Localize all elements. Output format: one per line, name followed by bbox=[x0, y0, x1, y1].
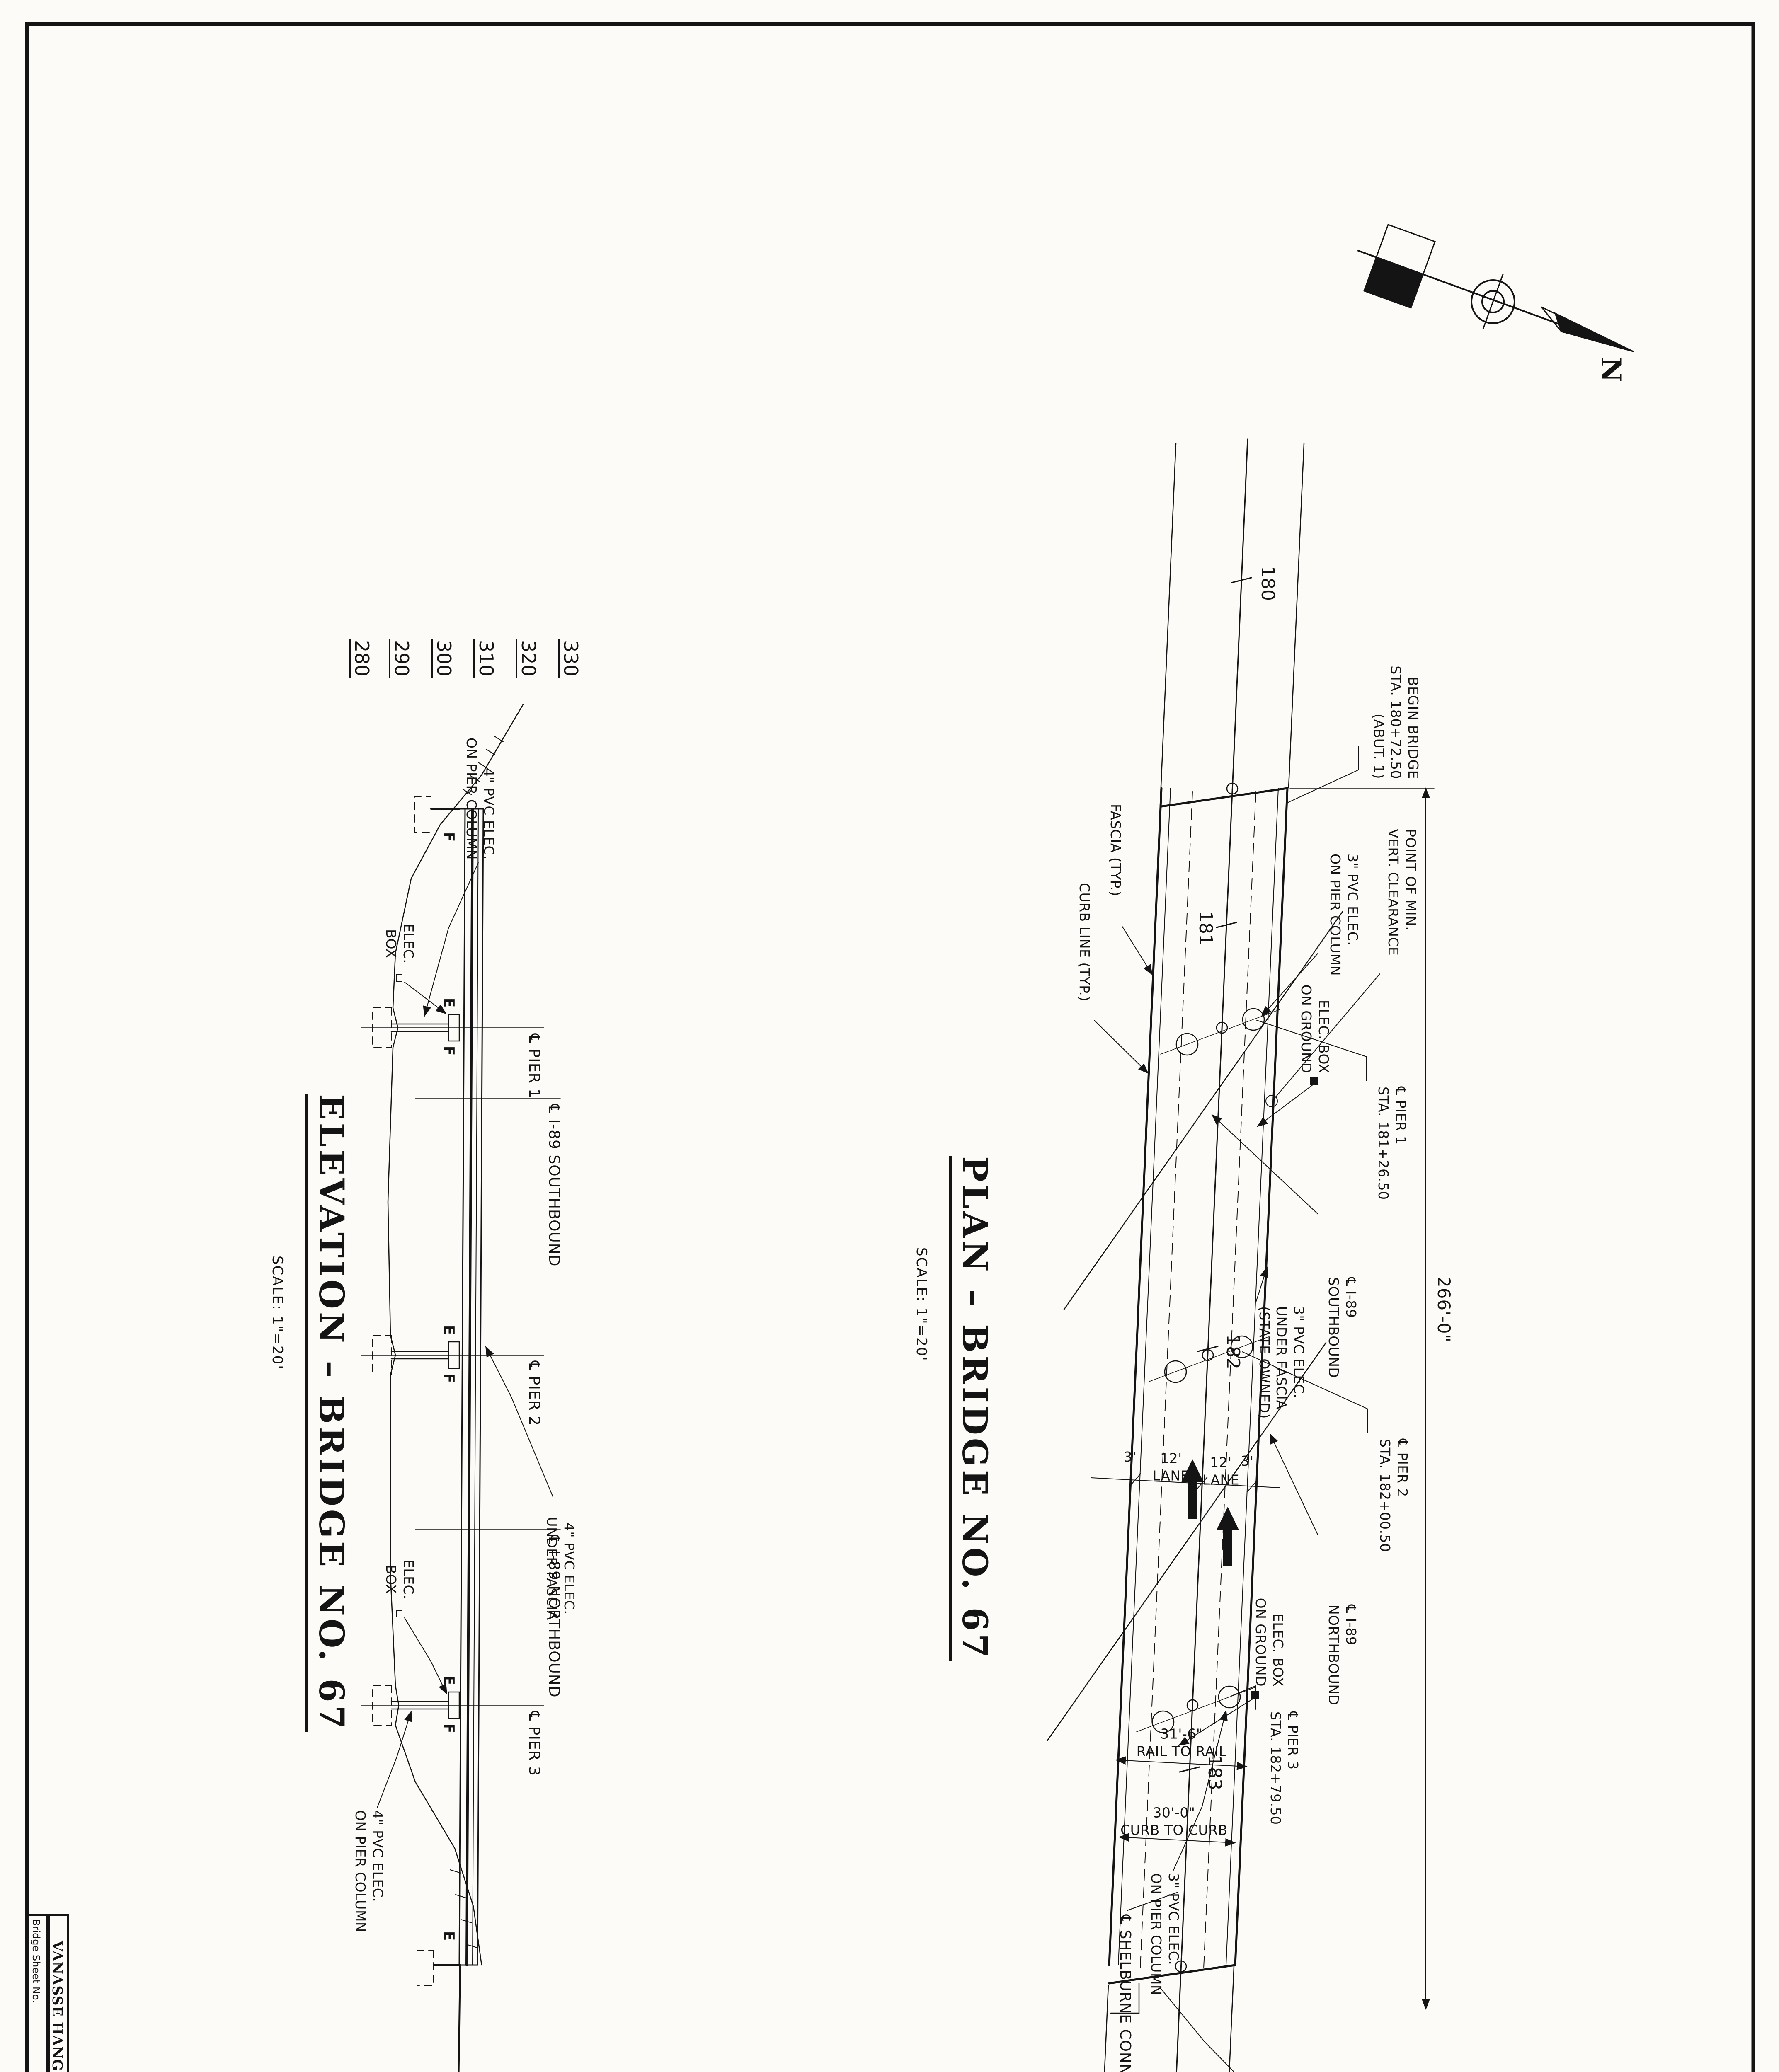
north-arrow-icon bbox=[1358, 225, 1633, 351]
vhb-name: VANASSE HANGEN BRUSTLIN, INC. bbox=[51, 1916, 64, 2072]
station-181: 181 bbox=[1196, 911, 1214, 946]
sheet-number-row: Bridge Sheet No. Sheet 59 of 195 bbox=[27, 1914, 48, 2072]
bearing-f-pier2: F bbox=[442, 1373, 456, 1383]
elev-pvc-on-pier-left-label: 4" PVC ELEC. ON PIER COLUMN bbox=[463, 729, 497, 860]
lane-dim-3ft-right: 3' bbox=[1124, 1448, 1137, 1466]
elev-i89-southbound-label: ℄ I-89 SOUTHBOUND bbox=[546, 1104, 561, 1266]
bearing-f-pier1: F bbox=[442, 1046, 456, 1055]
pier3-station-label: ℄ PIER 3 STA. 182+79.50 bbox=[1267, 1711, 1302, 1825]
elec-box-on-ground-label-2: ELEC. BOX ON GROUND bbox=[1252, 1579, 1287, 1687]
elev-elec-box-label-1: ELEC. BOX bbox=[383, 917, 417, 971]
begin-bridge-label: BEGIN BRIDGE STA. 180+72.50 (ABUT. 1) bbox=[1370, 634, 1422, 779]
pier2-station-label: ℄ PIER 2 STA. 182+00.50 bbox=[1377, 1439, 1411, 1552]
bearing-e-pier2: E bbox=[442, 1325, 456, 1335]
elev-grid-310-left: 310 bbox=[473, 639, 496, 678]
pvc-on-pier-column-label-2: 3" PVC ELEC. ON PIER COLUMN bbox=[1148, 1873, 1182, 1995]
elev-pvc-on-pier-right-label: 4" PVC ELEC. ON PIER COLUMN bbox=[352, 1810, 386, 1932]
drawing-page: 180 181 182 183 184 BEGIN BRIDGE STA. 18… bbox=[0, 0, 1779, 2072]
station-180: 180 bbox=[1258, 566, 1277, 601]
bearing-f-pier3: F bbox=[442, 1723, 456, 1733]
elev-elec-box-label-2: ELEC. BOX bbox=[383, 1552, 417, 1606]
station-182: 182 bbox=[1224, 1334, 1242, 1369]
i89-northbound-label: ℄ I-89 NORTHBOUND bbox=[1325, 1605, 1360, 1705]
pvc-on-pier-column-label-1: 3" PVC ELEC. ON PIER COLUMN bbox=[1327, 854, 1361, 976]
elev-grid-320-left: 320 bbox=[516, 639, 538, 678]
pier1-station-label: ℄ PIER 1 STA. 181+26.50 bbox=[1375, 1087, 1409, 1200]
shelburne-connection-label: ℄ SHELBURNE CONNECTION W.B. bbox=[1117, 1915, 1132, 2072]
overall-span-dimension: 266'-0" bbox=[1435, 1276, 1452, 1343]
i89-southbound-label: ℄ I-89 SOUTHBOUND bbox=[1325, 1277, 1360, 1378]
bearing-e-pier1: E bbox=[442, 998, 456, 1007]
point-min-clearance-label: POINT OF MIN. VERT. CLEARANCE bbox=[1385, 829, 1419, 956]
pvc-under-fascia-label: 3" PVC ELEC. UNDER FASCIA (STATE OWNED) bbox=[1255, 1306, 1307, 1419]
elev-grid-330-left: 330 bbox=[558, 639, 580, 678]
bearing-f-abut1: F bbox=[442, 832, 456, 842]
elev-pvc-under-fascia-label: 4" PVC ELEC. UNDER FASCIA bbox=[543, 1500, 578, 1637]
bearing-e-abut2: E bbox=[442, 1931, 456, 1941]
plan-title: PLAN – BRIDGE NO. 67 bbox=[949, 1156, 991, 1661]
lane-dim-12ft-left: 12' LANE bbox=[1198, 1454, 1243, 1488]
curb-to-curb-dimension: 30'-0" CURB TO CURB bbox=[1120, 1804, 1228, 1838]
north-label: N bbox=[1597, 357, 1625, 382]
elev-grid-300-left: 300 bbox=[431, 639, 453, 678]
sheet-border bbox=[27, 24, 1753, 2072]
elev-pier1-centerline-label: ℄ PIER 1 bbox=[526, 1034, 541, 1099]
elev-pier2-centerline-label: ℄ PIER 2 bbox=[526, 1361, 541, 1426]
elev-grid-290-left: 290 bbox=[389, 639, 411, 678]
rail-to-rail-dimension: 31'-6" RAIL TO RAIL bbox=[1127, 1725, 1235, 1760]
curb-line-label: CURB LINE (TYP.) bbox=[1076, 883, 1093, 1002]
elevation-title: ELEVATION – BRIDGE NO. 67 bbox=[305, 1094, 348, 1732]
station-183: 183 bbox=[1205, 1755, 1224, 1790]
elev-pier3-centerline-label: ℄ PIER 3 bbox=[526, 1711, 541, 1776]
elev-grid-280-left: 280 bbox=[349, 639, 371, 678]
plan-scale: SCALE: 1"=20' bbox=[914, 1247, 928, 1362]
elevation-scale: SCALE: 1"=20' bbox=[270, 1256, 284, 1370]
vhb-box: VANASSE HANGEN BRUSTLIN, INC. bbox=[48, 1914, 69, 2072]
bearing-e-pier3: E bbox=[442, 1675, 456, 1685]
lane-dim-12ft-right: 12' LANE bbox=[1148, 1450, 1194, 1484]
drawing-sheet: 180 181 182 183 184 BEGIN BRIDGE STA. 18… bbox=[0, 0, 1779, 2072]
elevation-leaders bbox=[377, 863, 553, 1808]
fascia-label: FASCIA (TYP.) bbox=[1107, 804, 1124, 896]
elec-box-on-ground-label-1: ELEC. BOX ON GROUND bbox=[1298, 966, 1332, 1073]
bridge-sheet-no-label: Bridge Sheet No. bbox=[31, 1919, 41, 2003]
drawing-linework bbox=[0, 0, 1779, 2072]
